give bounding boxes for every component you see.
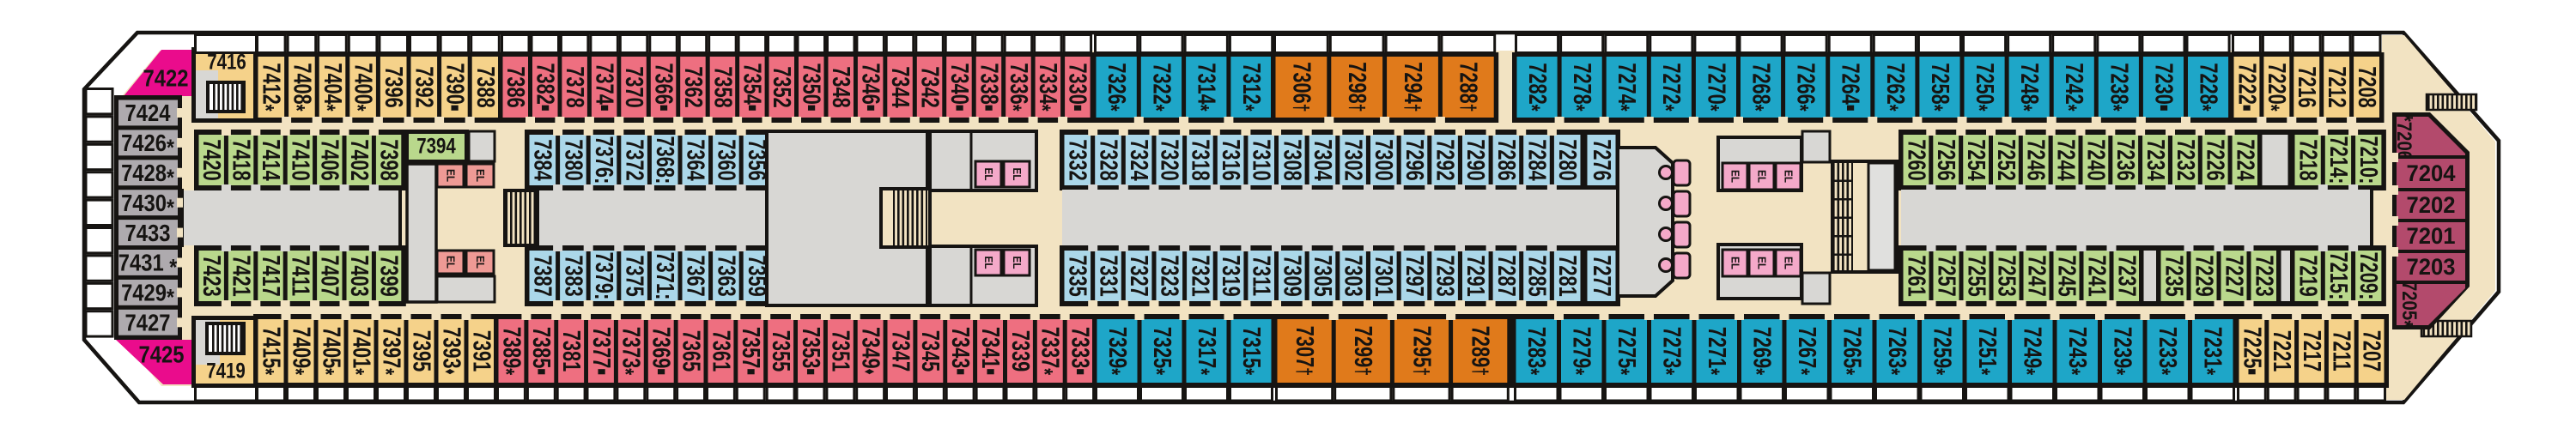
svg-text:7347: 7347 — [887, 330, 914, 372]
svg-text:7323: 7323 — [1156, 255, 1183, 296]
svg-text:7402: 7402 — [345, 139, 373, 180]
svg-text:7315*: 7315* — [1233, 327, 1265, 376]
svg-text:7269*: 7269* — [1744, 327, 1776, 376]
svg-text:7268*: 7268* — [1742, 63, 1774, 112]
svg-text:7297: 7297 — [1400, 255, 1428, 296]
svg-text:7256: 7256 — [1932, 139, 1959, 180]
svg-text:7412*: 7412* — [253, 63, 285, 112]
svg-text:7220*: 7220* — [2258, 63, 2290, 112]
svg-text:EL: EL — [1755, 170, 1768, 183]
svg-text:7424: 7424 — [125, 99, 171, 126]
svg-text:7384: 7384 — [529, 139, 556, 181]
svg-text:7254: 7254 — [1962, 139, 1990, 181]
svg-text:7320: 7320 — [1156, 139, 1183, 180]
svg-text:7204: 7204 — [2406, 160, 2455, 187]
svg-text:7289†: 7289† — [1467, 326, 1494, 376]
svg-text:7406: 7406 — [316, 139, 343, 180]
svg-text:7305: 7305 — [1309, 255, 1336, 296]
svg-text:7392: 7392 — [410, 66, 438, 107]
svg-text:7292: 7292 — [1431, 139, 1459, 180]
svg-text:7260: 7260 — [1903, 139, 1930, 180]
svg-text:7231*: 7231* — [2195, 327, 2227, 376]
svg-text:7317*: 7317* — [1188, 327, 1220, 376]
svg-text:7228*: 7228* — [2190, 63, 2221, 112]
svg-text:7343■: 7343■ — [946, 327, 974, 375]
svg-text:7417: 7417 — [257, 255, 284, 296]
svg-text:7433: 7433 — [125, 219, 171, 246]
svg-text:7395: 7395 — [408, 330, 435, 372]
svg-text:7227: 7227 — [2221, 255, 2248, 296]
svg-text:7410: 7410 — [287, 139, 314, 180]
svg-text:7210:: 7210: — [2354, 136, 2383, 184]
svg-text:7369■: 7369■ — [647, 327, 675, 375]
svg-text:7257: 7257 — [1933, 255, 1960, 296]
svg-text:EL: EL — [1728, 257, 1741, 269]
svg-text:7414: 7414 — [257, 139, 284, 181]
svg-text:7354■: 7354■ — [738, 63, 766, 111]
svg-text:7341■: 7341■ — [976, 327, 1004, 375]
svg-text:7368:: 7368: — [650, 136, 679, 184]
svg-text:7277: 7277 — [1588, 255, 1615, 296]
svg-text:7238*: 7238* — [2100, 63, 2132, 112]
svg-text:7370: 7370 — [620, 66, 647, 107]
svg-text:7350■: 7350■ — [798, 63, 825, 111]
svg-text:7411: 7411 — [287, 256, 314, 296]
svg-text:7382■: 7382■ — [532, 63, 559, 111]
svg-text:7326*: 7326* — [1098, 63, 1130, 112]
svg-text:7409*: 7409* — [283, 327, 314, 376]
svg-text:7421: 7421 — [228, 255, 255, 296]
svg-text:7363: 7363 — [713, 255, 740, 296]
svg-text:7303: 7303 — [1340, 255, 1367, 296]
svg-text:7264■: 7264■ — [1837, 63, 1864, 111]
svg-text:7364: 7364 — [682, 139, 709, 181]
svg-text:7240: 7240 — [2082, 139, 2110, 180]
svg-text:7224: 7224 — [2232, 139, 2259, 181]
svg-text:7244: 7244 — [2052, 139, 2080, 181]
svg-text:7222■: 7222■ — [2233, 63, 2261, 111]
svg-text:7337*: 7337* — [1031, 327, 1063, 376]
svg-text:7352: 7352 — [768, 66, 795, 107]
svg-text:7375: 7375 — [621, 255, 648, 296]
svg-text:7428*: 7428* — [121, 159, 174, 190]
svg-text:7318: 7318 — [1187, 139, 1214, 180]
svg-text:7218: 7218 — [2294, 139, 2322, 180]
svg-text:7372: 7372 — [621, 139, 648, 180]
svg-text:7212: 7212 — [2323, 66, 2350, 107]
svg-text:7423: 7423 — [197, 255, 225, 296]
svg-text:7427: 7427 — [125, 309, 171, 336]
svg-text:7332: 7332 — [1064, 139, 1091, 180]
svg-text:7247: 7247 — [2023, 255, 2050, 296]
svg-text:7278*: 7278* — [1564, 63, 1595, 112]
svg-text:7325*: 7325* — [1144, 327, 1176, 376]
svg-text:7394: 7394 — [416, 134, 456, 158]
svg-text:7398: 7398 — [375, 139, 403, 180]
svg-text:7233*: 7233* — [2149, 327, 2181, 376]
svg-text:7272*: 7272* — [1653, 63, 1685, 112]
svg-text:7327: 7327 — [1125, 255, 1152, 296]
svg-text:7252: 7252 — [1992, 139, 2020, 180]
svg-text:7366■: 7366■ — [650, 63, 677, 111]
svg-text:7259*: 7259* — [1924, 327, 1956, 376]
svg-text:7274*: 7274* — [1608, 63, 1640, 112]
svg-text:7348: 7348 — [827, 66, 854, 107]
svg-text:7207: 7207 — [2358, 330, 2385, 372]
svg-text:7400*: 7400* — [344, 63, 376, 112]
svg-text:EL: EL — [1011, 257, 1024, 269]
svg-text:7223: 7223 — [2251, 255, 2278, 296]
svg-text:7336*: 7336* — [1000, 63, 1032, 112]
svg-text:7232: 7232 — [2172, 139, 2199, 180]
svg-text:EL: EL — [1728, 170, 1741, 183]
svg-text:EL: EL — [1782, 170, 1795, 183]
svg-text:EL: EL — [444, 256, 457, 269]
svg-text:7270*: 7270* — [1698, 63, 1729, 112]
svg-text:7241: 7241 — [2083, 255, 2111, 296]
svg-text:7294†: 7294† — [1399, 62, 1426, 112]
svg-text:7328: 7328 — [1095, 139, 1122, 180]
svg-text:7202: 7202 — [2406, 192, 2455, 219]
svg-text:7362: 7362 — [679, 66, 707, 107]
svg-text:7221: 7221 — [2268, 330, 2295, 372]
svg-text:7291: 7291 — [1461, 255, 1489, 296]
svg-text:7345: 7345 — [916, 330, 944, 372]
svg-text:7408*: 7408* — [283, 63, 315, 112]
svg-text:7416: 7416 — [207, 50, 246, 74]
svg-text:EL: EL — [1782, 257, 1795, 269]
svg-text:7236: 7236 — [2111, 139, 2139, 180]
svg-text:7301: 7301 — [1370, 255, 1397, 296]
svg-text:7390■: 7390■ — [441, 63, 469, 111]
svg-text:7344: 7344 — [886, 66, 914, 108]
svg-text:7201: 7201 — [2406, 223, 2455, 250]
svg-text:7246: 7246 — [2022, 139, 2050, 180]
svg-text:7374■: 7374■ — [591, 63, 618, 111]
svg-text:7282*: 7282* — [1519, 63, 1551, 112]
svg-text:7404*: 7404* — [314, 63, 346, 112]
svg-text:7217: 7217 — [2298, 330, 2325, 372]
svg-text:7235: 7235 — [2160, 255, 2188, 296]
svg-text:EL: EL — [982, 257, 995, 269]
svg-text:7249*: 7249* — [2014, 327, 2046, 376]
svg-text:7386: 7386 — [501, 66, 529, 107]
svg-text:7376:: 7376: — [589, 136, 618, 184]
svg-text:EL: EL — [474, 256, 487, 269]
svg-text:7360: 7360 — [713, 139, 740, 180]
svg-text:7430*: 7430* — [121, 189, 174, 221]
svg-text:7275*: 7275* — [1608, 327, 1640, 376]
svg-text:7381: 7381 — [557, 330, 585, 372]
svg-text:7216: 7216 — [2293, 66, 2320, 107]
svg-text:EL: EL — [982, 168, 995, 181]
svg-text:7340■: 7340■ — [945, 63, 973, 111]
svg-text:7299†: 7299† — [1349, 326, 1376, 376]
svg-text:7262*: 7262* — [1877, 63, 1909, 112]
svg-text:7243*: 7243* — [2059, 327, 2091, 376]
svg-text:7353■: 7353■ — [797, 327, 824, 375]
svg-text:7255: 7255 — [1963, 255, 1990, 296]
svg-text:7311: 7311 — [1248, 256, 1275, 296]
svg-text:7283*: 7283* — [1518, 327, 1550, 376]
svg-text:7418: 7418 — [228, 139, 255, 180]
svg-text:7209:: 7209: — [2354, 252, 2383, 300]
svg-text:7357■: 7357■ — [737, 327, 764, 375]
svg-text:7300: 7300 — [1370, 139, 1397, 180]
svg-text:7242*: 7242* — [2056, 63, 2087, 112]
svg-text:7419: 7419 — [206, 359, 246, 383]
svg-text:7309: 7309 — [1279, 255, 1306, 296]
svg-text:7324: 7324 — [1125, 139, 1152, 181]
svg-text:7248*: 7248* — [2011, 63, 2043, 112]
svg-text:7329*: 7329* — [1099, 327, 1131, 376]
svg-text:7304: 7304 — [1309, 139, 1336, 181]
svg-text:7405*: 7405* — [313, 327, 344, 376]
svg-text:7422: 7422 — [143, 64, 189, 92]
svg-text:7388: 7388 — [471, 66, 499, 107]
svg-text:7335: 7335 — [1064, 255, 1091, 296]
svg-text:7330■: 7330■ — [1064, 63, 1091, 111]
svg-text:7253: 7253 — [1993, 255, 2020, 296]
svg-text:7314*: 7314* — [1188, 63, 1220, 112]
svg-text:7281: 7281 — [1553, 255, 1581, 296]
svg-text:7312*: 7312* — [1233, 63, 1265, 112]
svg-text:7361: 7361 — [708, 330, 735, 372]
svg-text:7251*: 7251* — [1969, 327, 2001, 376]
svg-text:7378: 7378 — [561, 66, 588, 107]
svg-text:7271*: 7271* — [1698, 327, 1730, 376]
svg-text:EL: EL — [1755, 257, 1768, 269]
svg-text:7319: 7319 — [1217, 255, 1244, 296]
svg-text:7266*: 7266* — [1787, 63, 1819, 112]
svg-text:7397*: 7397* — [373, 327, 404, 376]
svg-text:7371:: 7371: — [650, 252, 679, 300]
svg-text:7342: 7342 — [916, 66, 944, 107]
svg-text:7279*: 7279* — [1564, 327, 1595, 376]
svg-text:7288†: 7288† — [1455, 62, 1482, 112]
svg-text:7373*: 7373* — [613, 327, 645, 376]
svg-text:7425: 7425 — [139, 341, 185, 368]
svg-text:7385■: 7385■ — [527, 327, 555, 375]
svg-text:7307†: 7307† — [1291, 326, 1318, 376]
svg-text:7258*: 7258* — [1922, 63, 1953, 112]
svg-text:7267*: 7267* — [1789, 327, 1820, 376]
svg-text:7239*: 7239* — [2105, 327, 2136, 376]
svg-text:7391: 7391 — [468, 330, 495, 372]
svg-text:7219: 7219 — [2294, 255, 2322, 296]
svg-text:7226: 7226 — [2202, 139, 2229, 180]
svg-text:7290: 7290 — [1461, 139, 1489, 180]
svg-text:7403: 7403 — [345, 255, 373, 296]
svg-text:7349♦: 7349♦ — [857, 327, 884, 375]
svg-text:7420: 7420 — [197, 139, 225, 180]
svg-text:7339: 7339 — [1006, 330, 1034, 372]
svg-text:7284: 7284 — [1523, 139, 1551, 181]
svg-text:7280: 7280 — [1553, 139, 1581, 180]
svg-text:7331: 7331 — [1095, 255, 1122, 296]
svg-text:7393♦: 7393♦ — [438, 327, 465, 375]
svg-text:7310: 7310 — [1248, 139, 1275, 180]
svg-text:7355: 7355 — [767, 330, 794, 372]
svg-text:7263*: 7263* — [1879, 327, 1911, 376]
svg-text:7322*: 7322* — [1143, 63, 1175, 112]
svg-text:7208: 7208 — [2353, 66, 2380, 107]
svg-text:7431 *: 7431 * — [118, 249, 178, 281]
svg-text:7285: 7285 — [1523, 255, 1551, 296]
svg-text:7225■: 7225■ — [2239, 327, 2266, 375]
svg-text:7377■: 7377■ — [587, 327, 615, 375]
svg-text:7338■: 7338■ — [975, 63, 1003, 111]
svg-text:7250*: 7250* — [1966, 63, 1998, 112]
svg-text:7401*: 7401* — [343, 327, 374, 376]
svg-text:7358: 7358 — [709, 66, 737, 107]
svg-text:7396: 7396 — [380, 66, 407, 107]
svg-text:7389*: 7389* — [493, 327, 525, 376]
svg-text:7215:: 7215: — [2324, 252, 2353, 300]
svg-text:7429*: 7429* — [121, 279, 174, 311]
svg-text:7229: 7229 — [2190, 255, 2218, 296]
svg-text:7387: 7387 — [529, 255, 556, 296]
svg-text:7333■: 7333■ — [1066, 327, 1094, 375]
svg-text:7245: 7245 — [2053, 255, 2081, 296]
svg-text:7321: 7321 — [1187, 255, 1214, 296]
svg-text:7214:: 7214: — [2324, 136, 2353, 184]
svg-text:7351: 7351 — [827, 330, 854, 372]
svg-text:7346■: 7346■ — [857, 63, 884, 111]
svg-text:7295†: 7295† — [1408, 326, 1436, 376]
svg-text:7379:: 7379: — [589, 252, 618, 300]
svg-text:7306†: 7306† — [1288, 62, 1315, 112]
svg-text:7426*: 7426* — [121, 129, 174, 160]
svg-text:7286: 7286 — [1492, 139, 1520, 180]
svg-text:7203: 7203 — [2406, 254, 2455, 281]
svg-text:7211: 7211 — [2328, 330, 2355, 371]
svg-text:7334*: 7334* — [1030, 63, 1061, 112]
svg-text:7230■: 7230■ — [2150, 63, 2178, 111]
svg-text:7380: 7380 — [560, 139, 587, 180]
svg-text:7237: 7237 — [2113, 255, 2141, 296]
svg-text:7296: 7296 — [1400, 139, 1428, 180]
svg-text:7276: 7276 — [1588, 139, 1615, 180]
svg-text:7234: 7234 — [2142, 139, 2169, 181]
svg-text:EL: EL — [444, 169, 457, 182]
svg-text:7407: 7407 — [316, 255, 343, 296]
svg-text:7273*: 7273* — [1654, 327, 1686, 376]
svg-text:7367: 7367 — [682, 255, 709, 296]
svg-text:7365: 7365 — [677, 330, 705, 372]
svg-text:7302: 7302 — [1340, 139, 1367, 180]
svg-text:7265*: 7265* — [1834, 327, 1866, 376]
svg-text:EL: EL — [474, 169, 487, 182]
svg-text:7399: 7399 — [375, 255, 403, 296]
svg-text:7316: 7316 — [1217, 139, 1244, 180]
svg-text:7298†: 7298† — [1343, 62, 1370, 112]
svg-text:7383: 7383 — [560, 255, 587, 296]
svg-text:7261: 7261 — [1903, 255, 1930, 296]
svg-text:7293: 7293 — [1431, 255, 1459, 296]
svg-text:7308: 7308 — [1279, 139, 1306, 180]
svg-text:EL: EL — [1011, 168, 1024, 181]
svg-text:7287: 7287 — [1492, 255, 1520, 296]
